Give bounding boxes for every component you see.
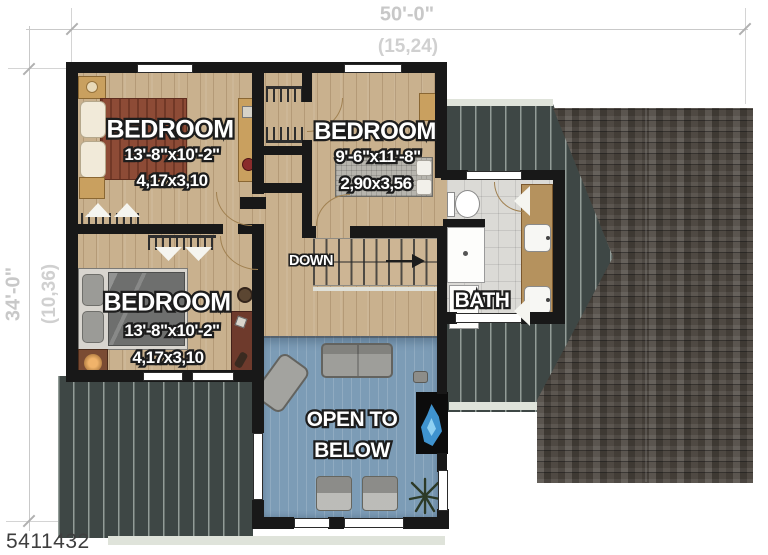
sink-faucet: [546, 298, 550, 302]
window: [438, 470, 448, 511]
wall: [302, 226, 316, 238]
roof-ridge-line: [645, 108, 647, 482]
wall: [437, 509, 449, 529]
dimension-line-left: [29, 26, 30, 531]
stairs-stringer: [313, 287, 437, 291]
stairs-direction-arrow-icon: [412, 254, 425, 268]
wall: [328, 517, 344, 529]
roof-fascia-top: [447, 99, 553, 106]
wall: [252, 62, 264, 194]
wall: [66, 224, 223, 234]
window: [466, 171, 522, 180]
roof-fascia-right: [449, 402, 537, 410]
dimension-left-metric: (10,36): [39, 264, 61, 324]
armchair: [362, 476, 398, 511]
window: [294, 518, 330, 528]
plan-number: 5411432: [6, 530, 90, 554]
wall: [443, 219, 485, 227]
dimension-left-imperial: 34'-0": [3, 267, 26, 321]
window: [137, 64, 193, 73]
wall: [553, 170, 565, 324]
extension-line-roof-right: [745, 8, 746, 104]
wall: [66, 62, 78, 380]
wall: [437, 332, 447, 394]
bed-pillow: [80, 101, 106, 138]
window: [192, 372, 234, 381]
dimension-top-metric: (15,24): [378, 36, 438, 58]
stool: [237, 287, 253, 303]
deck-fascia-bottom: [108, 536, 445, 545]
window: [253, 433, 263, 500]
extension-line-house-left: [71, 8, 72, 62]
dimension-line-top: [26, 29, 748, 30]
extension-line-deck-bottom: [6, 521, 58, 522]
room-label-bedroom-top-right: BEDROOM: [314, 118, 436, 146]
shower-drain: [463, 251, 468, 256]
sofa: [321, 343, 393, 378]
floor-plan: BEDROOM 13'-8"x10'-2" 4,17x3,10 BEDROOM …: [0, 0, 768, 555]
deck-roof-bottom-left: [58, 376, 253, 538]
bed-pillow: [80, 141, 106, 178]
armchair: [316, 476, 352, 511]
nightstand-lamp: [86, 81, 98, 93]
stairs-arrow-shaft: [386, 260, 412, 262]
extension-line-house-top: [8, 68, 66, 69]
bed-pillow: [82, 311, 104, 343]
wall: [435, 62, 447, 178]
wall: [252, 517, 294, 529]
decor-item: [413, 371, 428, 383]
bed-pillow: [82, 274, 104, 306]
room-size-imperial: 13'-8"x10'-2": [124, 145, 219, 165]
window: [143, 372, 183, 381]
room-size-metric: 4,17x3,10: [132, 348, 203, 368]
stairs-label: DOWN: [289, 253, 333, 269]
window: [344, 64, 402, 73]
sink-faucet: [546, 236, 550, 240]
open-to-below-label-line2: BELOW: [314, 439, 390, 463]
toilet-bowl: [455, 190, 480, 218]
room-size-metric: 4,17x3,10: [136, 171, 207, 191]
open-to-below-edge: [263, 336, 437, 338]
toilet-tank: [447, 192, 455, 217]
nightstand: [79, 177, 105, 199]
window: [455, 313, 522, 323]
window: [344, 518, 404, 528]
wall: [441, 170, 468, 180]
wall: [302, 62, 312, 102]
wall: [302, 140, 312, 238]
room-label-bedroom-bottom-left: BEDROOM: [103, 289, 230, 318]
room-size-imperial: 13'-8"x10'-2": [124, 321, 219, 341]
wall: [350, 226, 447, 238]
room-size-metric: 2,90x3,56: [340, 174, 411, 194]
shelf: [419, 93, 436, 121]
open-to-below-label-line1: OPEN TO: [307, 408, 398, 432]
bed-pillow: [416, 179, 432, 195]
dimension-top-imperial: 50'-0": [380, 4, 434, 27]
room-size-imperial: 9'-6"x11'-8": [335, 147, 420, 167]
room-label-bedroom-top-left: BEDROOM: [106, 116, 233, 145]
room-label-bath: BATH: [455, 289, 510, 313]
